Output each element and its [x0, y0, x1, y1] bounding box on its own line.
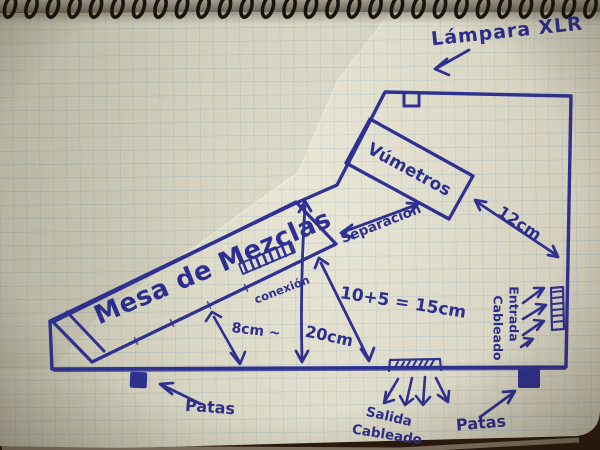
sketch-canvas: Mesa de Mezclas conexión Vúmetros Lámpar…	[0, 0, 600, 450]
photo-vignette	[0, 0, 600, 450]
notebook-photo: Mesa de Mezclas conexión Vúmetros Lámpar…	[0, 0, 600, 450]
